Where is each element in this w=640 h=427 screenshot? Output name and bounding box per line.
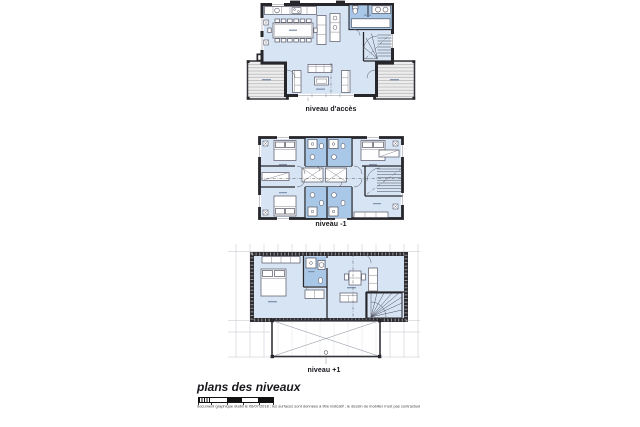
disclaimer-text: document graphique établi le 06/07/2018 … bbox=[197, 405, 420, 409]
sofa bbox=[308, 65, 332, 73]
room-label bbox=[279, 164, 287, 165]
toilet-icon bbox=[318, 278, 322, 284]
toilet-icon bbox=[320, 143, 324, 148]
floor-plan-acces bbox=[246, 0, 416, 106]
room-label bbox=[316, 89, 325, 90]
scale-bar-segment bbox=[211, 398, 227, 402]
dining-table bbox=[268, 19, 317, 42]
toilet-icon bbox=[353, 8, 358, 14]
plans-sheet: niveau d'accès bbox=[0, 0, 640, 427]
terrace-left bbox=[247, 60, 289, 99]
room-label bbox=[279, 192, 287, 193]
plan-label-plus1: niveau +1 bbox=[228, 367, 420, 374]
cabinet bbox=[369, 268, 378, 291]
shower-icon bbox=[329, 140, 338, 149]
stove-icon bbox=[292, 8, 301, 14]
shower-icon bbox=[329, 207, 338, 216]
shower-icon bbox=[308, 207, 317, 216]
roof-vent bbox=[290, 1, 300, 5]
plan-label-acces: niveau d'accès bbox=[246, 106, 416, 113]
bathroom bbox=[349, 5, 392, 30]
washbasin-icon bbox=[332, 155, 337, 160]
shower-icon bbox=[308, 140, 317, 149]
toilet-icon bbox=[341, 200, 345, 205]
sofa bbox=[342, 71, 351, 93]
room-label bbox=[373, 203, 381, 204]
room-label bbox=[262, 79, 271, 80]
sheet-title: plans des niveaux bbox=[197, 380, 300, 394]
room-label bbox=[268, 301, 277, 302]
bathtub-icon bbox=[352, 19, 391, 28]
sink-icon bbox=[275, 8, 280, 13]
scale-bar-segment bbox=[242, 398, 258, 402]
room-label bbox=[347, 287, 356, 288]
floor-plan-plus1 bbox=[228, 240, 420, 373]
staircase bbox=[367, 293, 402, 318]
room-label bbox=[369, 164, 377, 165]
room-label bbox=[390, 79, 399, 80]
floor-plan-plus1-drawing bbox=[228, 240, 420, 368]
floor-plan-minus1-drawing bbox=[255, 133, 407, 224]
washbasin-icon bbox=[310, 155, 315, 160]
plan-label-minus1: niveau -1 bbox=[255, 221, 407, 228]
shower-icon bbox=[306, 258, 316, 268]
bench bbox=[354, 212, 388, 218]
washbasin-icon bbox=[310, 193, 315, 198]
scale-bar-segment bbox=[227, 398, 243, 402]
room-label bbox=[289, 30, 297, 31]
washbasin-icon bbox=[332, 193, 337, 198]
scale-bar-segment bbox=[199, 398, 211, 402]
toilet-icon bbox=[320, 200, 324, 205]
roof-deck bbox=[271, 319, 382, 358]
room-label bbox=[364, 15, 371, 16]
floor-plan-acces-drawing bbox=[246, 0, 416, 101]
room-label bbox=[308, 271, 315, 272]
floor-plan-minus1 bbox=[255, 133, 407, 229]
toilet-icon bbox=[341, 143, 345, 148]
scale-bar-segment bbox=[258, 398, 274, 402]
terrace-right bbox=[373, 60, 415, 99]
roof-vent bbox=[336, 1, 345, 5]
